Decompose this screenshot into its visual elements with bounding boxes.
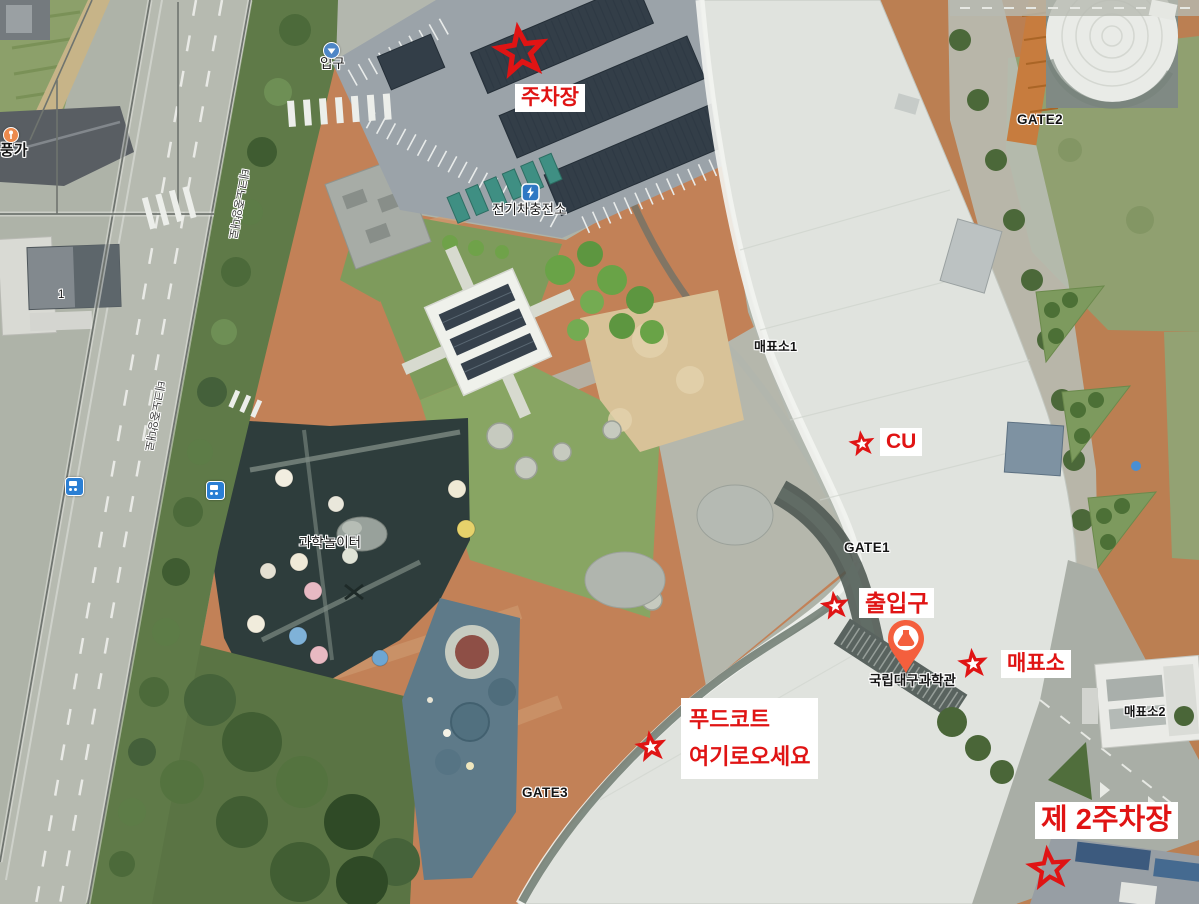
annotation-ticket-booth: 매표소 [1001, 650, 1071, 678]
annotation-foodcourt-line2: 여기로오세요 [689, 738, 810, 775]
museum-map-pin[interactable] [886, 618, 926, 683]
parking-entrance-icon[interactable] [323, 42, 340, 59]
label-gate3: GATE3 [522, 786, 568, 801]
label-ticket-office-2: 매표소2 [1124, 706, 1165, 720]
satellite-imagery-canvas[interactable] [0, 0, 1199, 904]
label-science-playground: 과학놀이터 [299, 536, 361, 551]
star-annotation-parking [488, 18, 554, 85]
star-annotation-parking2 [1024, 843, 1075, 896]
label-restaurant: 풍가 [0, 143, 28, 160]
bus-stop-icon[interactable] [206, 481, 225, 500]
star-annotation-cu [843, 424, 882, 464]
map-viewport[interactable]: 입구 전기차충전소 매표소1 GATE1 GATE2 GATE3 과학놀이터 국… [0, 0, 1199, 904]
annotation-parking2: 제 2주차장 [1035, 802, 1178, 839]
ticket-office-2-building [1095, 655, 1199, 748]
star-annotation-entrance [813, 584, 856, 629]
restaurant-poi-icon[interactable] [3, 127, 19, 143]
label-ticket-office-1: 매표소1 [754, 340, 797, 354]
label-building-number: 1 [58, 289, 64, 302]
annotation-foodcourt-line1: 푸드코트 [689, 701, 810, 738]
annotation-cu: CU [880, 428, 922, 456]
star-annotation-ticket [951, 641, 995, 687]
ev-charging-icon[interactable] [521, 183, 540, 207]
annotation-entrance: 출입구 [859, 588, 934, 618]
label-gate2: GATE2 [1017, 113, 1063, 128]
bus-stop-icon[interactable] [65, 477, 84, 496]
annotation-parking: 주차장 [515, 84, 585, 112]
star-annotation-foodcourt [627, 722, 675, 771]
annotation-foodcourt: 푸드코트 여기로오세요 [681, 698, 818, 779]
label-gate1: GATE1 [844, 541, 890, 556]
